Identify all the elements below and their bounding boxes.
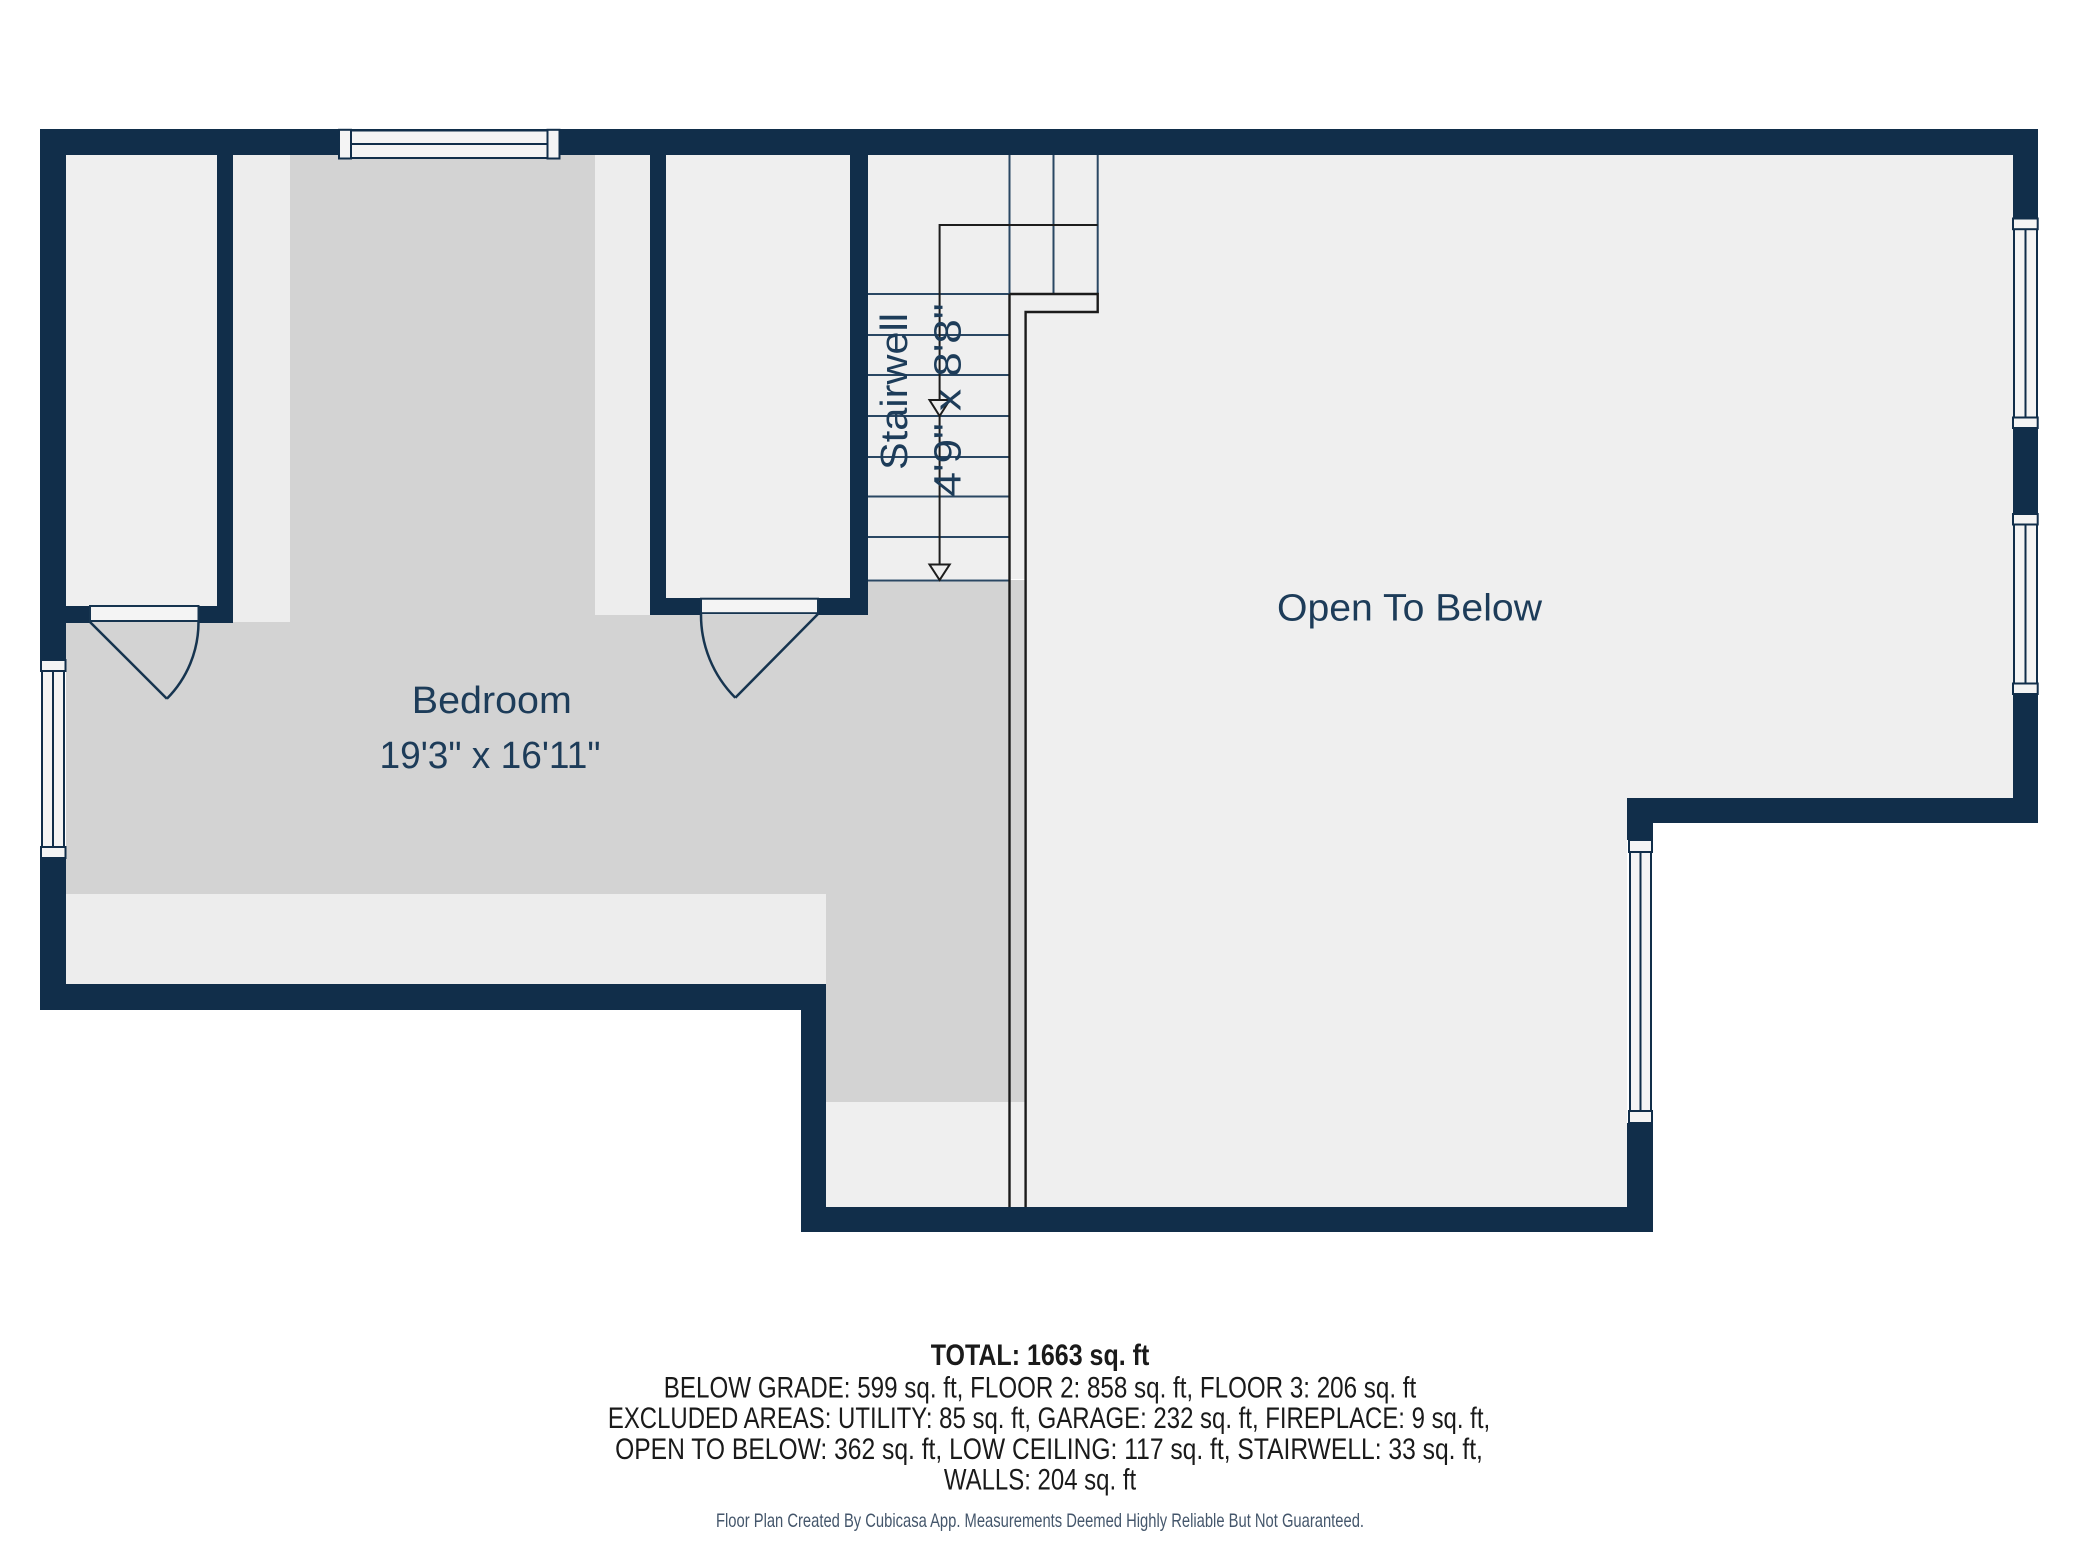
svg-text:19'3" x 16'11": 19'3" x 16'11" [380,735,601,777]
svg-text:WALLS: 204 sq. ft: WALLS: 204 sq. ft [944,1463,1136,1496]
svg-text:Open To Below: Open To Below [1277,588,1543,630]
svg-text:BELOW GRADE: 599 sq. ft, FLOOR: BELOW GRADE: 599 sq. ft, FLOOR 2: 858 sq… [664,1372,1416,1405]
svg-text:4'9" x 8'8": 4'9" x 8'8" [928,304,970,497]
svg-text:Floor Plan Created By Cubicasa: Floor Plan Created By Cubicasa App. Meas… [716,1510,1364,1532]
svg-text:EXCLUDED AREAS: UTILITY: 85 sq: EXCLUDED AREAS: UTILITY: 85 sq. ft, GARA… [608,1402,1490,1435]
svg-text:Bedroom: Bedroom [412,680,572,722]
svg-text:OPEN TO BELOW: 362 sq. ft, LOW: OPEN TO BELOW: 362 sq. ft, LOW CEILING: … [615,1433,1483,1466]
svg-text:Stairwell: Stairwell [874,313,916,470]
svg-text:TOTAL: 1663 sq. ft: TOTAL: 1663 sq. ft [931,1339,1150,1372]
